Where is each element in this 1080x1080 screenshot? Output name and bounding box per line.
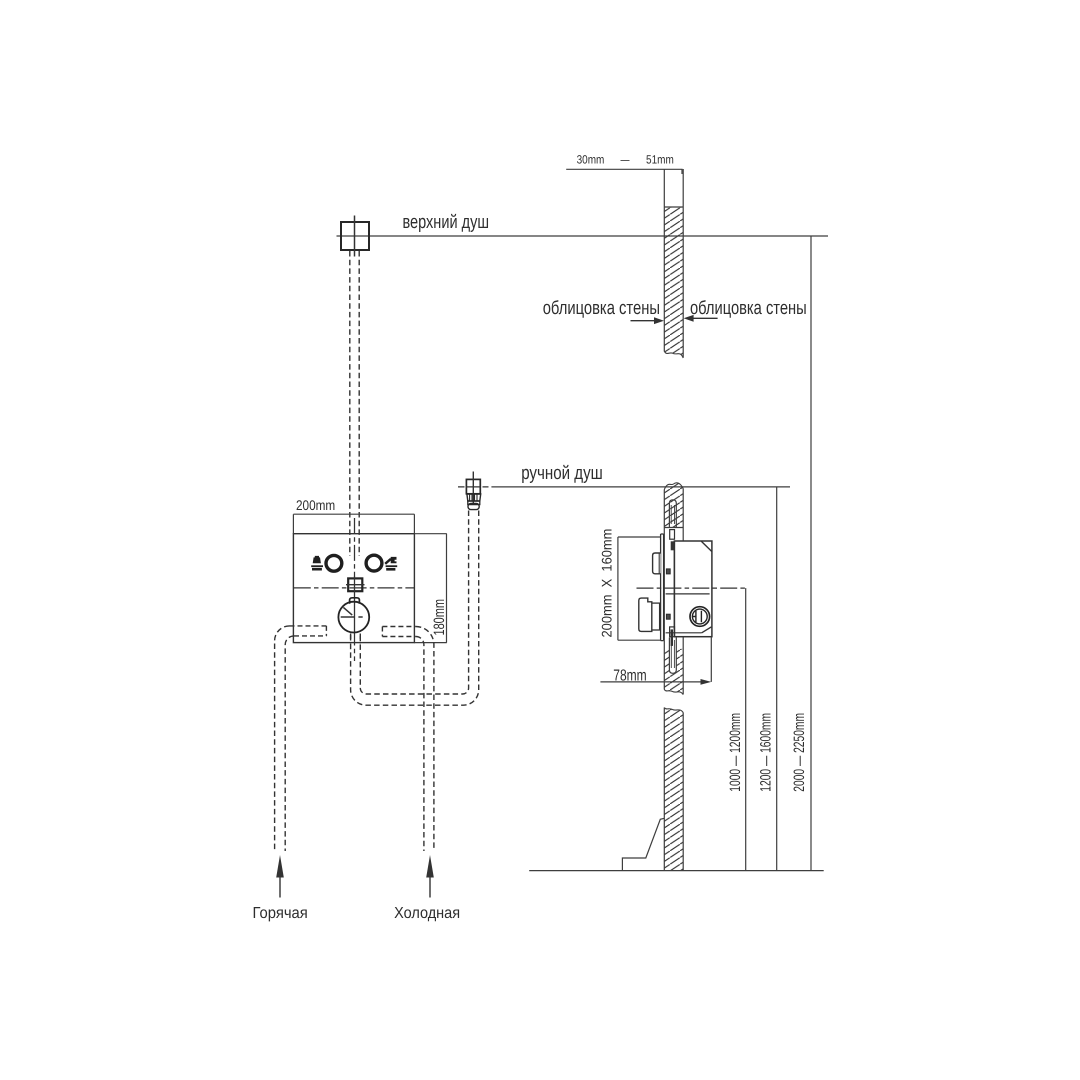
svg-text:ручной душ: ручной душ <box>521 463 603 484</box>
svg-text:Холодная: Холодная <box>394 905 460 922</box>
svg-text:1200 — 1600mm: 1200 — 1600mm <box>758 713 775 792</box>
svg-text:200mm: 200mm <box>296 497 335 513</box>
svg-text:51mm: 51mm <box>646 153 674 167</box>
svg-text:78mm: 78mm <box>613 667 646 684</box>
svg-text:облицовка стены: облицовка стены <box>543 298 660 319</box>
svg-text:30mm: 30mm <box>577 153 605 167</box>
svg-text:180mm: 180mm <box>431 599 448 636</box>
svg-text:1000 — 1200mm: 1000 — 1200mm <box>727 713 744 792</box>
svg-text:200mm X 160mm: 200mm X 160mm <box>599 529 615 638</box>
svg-text:верхний душ: верхний душ <box>403 212 490 233</box>
svg-text:—: — <box>621 153 630 167</box>
svg-text:2000 — 2250mm: 2000 — 2250mm <box>791 713 808 792</box>
svg-text:облицовка стены: облицовка стены <box>690 298 807 319</box>
svg-text:Горячая: Горячая <box>253 905 308 922</box>
